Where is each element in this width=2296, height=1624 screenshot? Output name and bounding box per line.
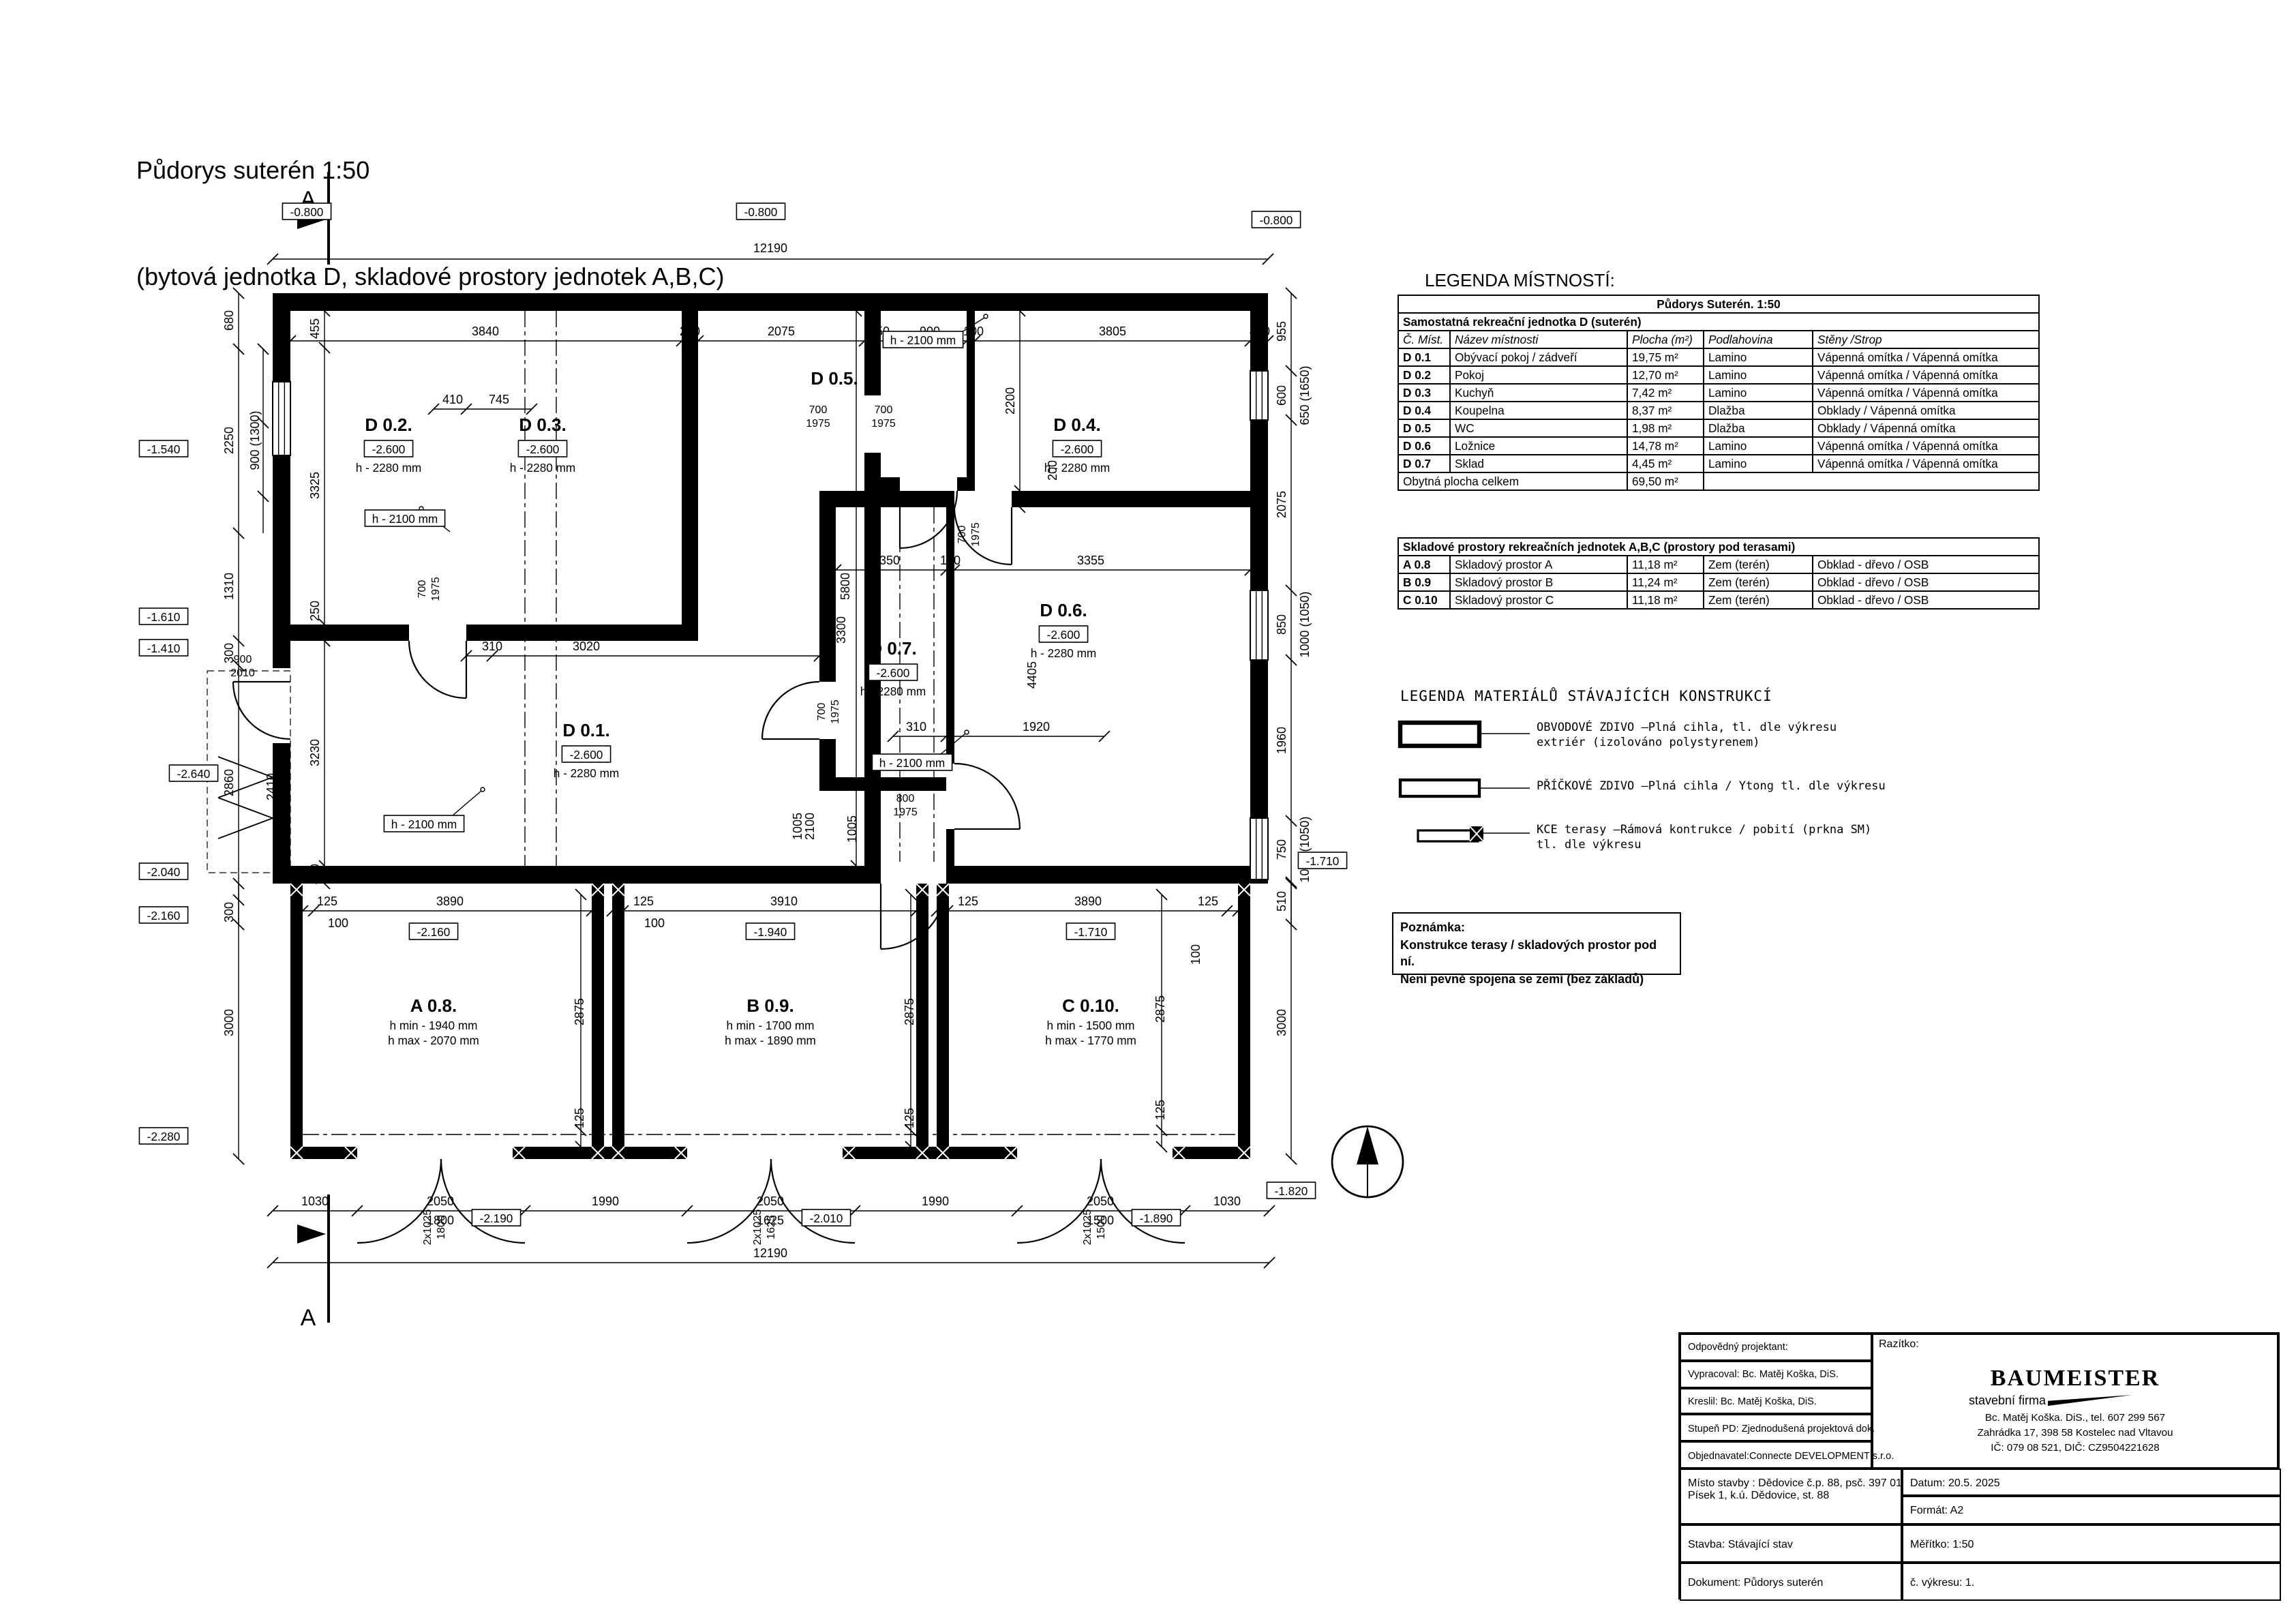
table-cell: Obytná plocha celkem (1398, 472, 1627, 490)
dim-text: 700 (816, 703, 828, 721)
room-height-line: h min - 1940 mm (390, 1019, 478, 1032)
room-name: D 0.5. (811, 368, 858, 389)
table-row: Samostatná rekreační jednotka D (suterén… (1398, 313, 2039, 331)
material-item-2: PŘÍČKOVÉ ZDIVO –Plná cihla / Ytong tl. d… (1537, 780, 1886, 795)
dimension-lines (233, 254, 1297, 1268)
dim-text: 2x1025 (1082, 1209, 1093, 1246)
elevation-label: h - 2100 mm (879, 756, 945, 770)
room-height-line: h min - 1700 mm (727, 1019, 815, 1032)
room-elevation: -2.600 (1047, 628, 1081, 642)
elevation-label: -1.890 (1140, 1212, 1173, 1225)
table-row: A 0.8Skladový prostor A11,18 m²Zem (teré… (1398, 556, 2039, 573)
table-cell: Obklad - dřevo / OSB (1813, 573, 2039, 591)
elevation-label: -1.410 (147, 642, 181, 655)
dim-text: 1975 (830, 700, 841, 724)
dim-text: 700 (875, 404, 893, 416)
table-cell: Skladové prostory rekreačních jednotek A… (1398, 538, 2039, 556)
table-cell: Lamino (1704, 437, 1813, 455)
table-cell: Vápenná omítka / Vápenná omítka (1813, 455, 2039, 472)
table-cell: Vápenná omítka / Vápenná omítka (1813, 437, 2039, 455)
dim-text: 1975 (430, 577, 442, 601)
window (1250, 818, 1268, 879)
table-cell: A 0.8 (1398, 556, 1450, 573)
elevation-label: -2.160 (147, 909, 181, 922)
table-cell: D 0.3 (1398, 384, 1450, 402)
table-cell: Obklady / Vápenná omítka (1813, 402, 2039, 419)
room-name: D 0.4. (1053, 415, 1100, 435)
dim-text: 1005 (845, 815, 859, 843)
dim-text: 2050 (427, 1194, 454, 1208)
dim-text: 2410 (265, 773, 278, 800)
dim-text: 250 (308, 601, 322, 621)
table-cell: Půdorys Suterén. 1:50 (1398, 295, 2039, 313)
material-item-3-line2: tl. dle výkresu (1537, 839, 1871, 854)
table-cell: 14,78 m² (1627, 437, 1704, 455)
title-block: Odpovědný projektant:Vypracoval: Bc. Mat… (1678, 1332, 2280, 1599)
dim-text: 3355 (1077, 554, 1104, 567)
titleblock-row: Odpovědný projektant: (1680, 1334, 1872, 1361)
dim-text: 125 (633, 894, 654, 908)
table-cell: Obývací pokoj / zádveří (1450, 348, 1627, 366)
room-elevation: -2.600 (372, 442, 406, 456)
table-row: Obytná plocha celkem69,50 m² (1398, 472, 2039, 490)
legend-table-storage: Skladové prostory rekreačních jednotek A… (1398, 537, 2040, 610)
titleblock-row: Kreslil: Bc. Matěj Koška, DiS. (1680, 1387, 1872, 1415)
elevation-label: -1.540 (147, 442, 181, 456)
table-cell: Obklad - dřevo / OSB (1813, 591, 2039, 609)
elevation-label: -2.160 (417, 925, 451, 939)
room-name: B 0.9. (746, 995, 794, 1016)
table-cell: Sklad (1450, 455, 1627, 472)
dim-text: 1990 (922, 1194, 949, 1208)
table-cell: D 0.2 (1398, 366, 1450, 384)
dim-text: 600 (1275, 385, 1288, 406)
room-height: h - 2280 mm (510, 461, 575, 475)
dim-text: 410 (442, 393, 463, 406)
room-name: D 0.7. (869, 638, 916, 659)
table-cell: D 0.1 (1398, 348, 1450, 366)
dim-text: 900 (1300) (248, 410, 262, 470)
table-cell: Ložnice (1450, 437, 1627, 455)
room-name: D 0.1. (562, 720, 609, 740)
dim-text: 12190 (753, 1246, 787, 1260)
elevation-label: -2.190 (480, 1212, 513, 1225)
table-cell: WC (1450, 419, 1627, 437)
room-elevation: -2.600 (877, 666, 910, 680)
table-cell: Zem (terén) (1704, 573, 1813, 591)
room-height: h - 2280 mm (1031, 646, 1096, 660)
dim-text: 1310 (222, 573, 236, 600)
windows (273, 371, 1268, 879)
dim-text: 2875 (903, 998, 916, 1025)
table-row: D 0.1Obývací pokoj / zádveří19,75 m²Lami… (1398, 348, 2039, 366)
table-row: D 0.5WC1,98 m²DlažbaObklady / Vápenná om… (1398, 419, 2039, 437)
dim-text: 1005 (791, 813, 804, 840)
dim-text: 1350 (873, 554, 900, 567)
dim-text: 1800 (436, 1215, 447, 1239)
table-cell: Koupelna (1450, 402, 1627, 419)
table-row: D 0.3Kuchyň7,42 m²LaminoVápenná omítka /… (1398, 384, 2039, 402)
table-cell: Vápenná omítka / Vápenná omítka (1813, 384, 2039, 402)
page-title-line1: Půdorys suterén 1:50 (136, 153, 724, 188)
table-cell: 11,24 m² (1627, 573, 1704, 591)
north-arrow (1332, 1126, 1403, 1197)
table-cell: 11,18 m² (1627, 591, 1704, 609)
table-cell: Pokoj (1450, 366, 1627, 384)
dim-text: 650 (1650) (1298, 365, 1312, 425)
dim-text: 125 (317, 894, 337, 908)
window (1250, 590, 1268, 660)
elevation-label: -2.640 (177, 767, 211, 781)
table-cell: Název místnosti (1450, 331, 1627, 348)
room-height-line: h min - 1500 mm (1047, 1019, 1135, 1032)
dim-text: 310 (482, 640, 502, 653)
dim-text: 2250 (222, 427, 236, 454)
elevation-label: h - 2100 mm (890, 333, 956, 347)
table-cell: Lamino (1704, 384, 1813, 402)
vykres-cell: č. výkresu: 1. (1902, 1563, 2281, 1601)
elevation-label: h - 2100 mm (372, 512, 438, 526)
room-height: h - 2280 mm (860, 685, 926, 698)
misto-line1: Místo stavby : Dědovice č.p. 88, psč. 39… (1688, 1477, 1901, 1489)
table-cell: Samostatná rekreační jednotka D (suterén… (1398, 313, 2039, 331)
table-cell: Skladový prostor B (1450, 573, 1627, 591)
room-elevation: -2.600 (526, 442, 560, 456)
note-line2: Konstrukce terasy / skladových prostor p… (1400, 936, 1673, 970)
titleblock-row: Stupeň PD: Zjednodušená projektová dok. (1680, 1415, 1872, 1442)
table-cell: B 0.9 (1398, 573, 1450, 591)
dim-text: 1975 (970, 522, 982, 547)
dim-text: 2050 (757, 1194, 784, 1208)
dim-text: 2x1025 (752, 1209, 764, 1246)
table-row: B 0.9Skladový prostor B11,24 m²Zem (teré… (1398, 573, 2039, 591)
dim-text: 1975 (893, 807, 918, 818)
dim-text: 750 (1275, 839, 1288, 860)
table-cell: 19,75 m² (1627, 348, 1704, 366)
table-row: D 0.6Ložnice14,78 m²LaminoVápenná omítka… (1398, 437, 2039, 455)
dim-text: 3000 (222, 1009, 236, 1036)
room-height-line: h max - 1770 mm (1045, 1034, 1136, 1047)
room-name: A 0.8. (410, 995, 457, 1016)
dokument-cell: Dokument: Půdorys suterén (1680, 1563, 1902, 1601)
dim-text: 745 (489, 393, 509, 406)
datum-cell: Datum: 20.5. 2025 (1902, 1469, 2281, 1496)
dim-text: 800 (896, 793, 915, 805)
dim-text: 450 (1250, 325, 1270, 338)
dim-text: 3890 (436, 894, 464, 908)
stavba-cell: Stavba: Stávající stav (1680, 1524, 1902, 1563)
titleblock-row: Vypracoval: Bc. Matěj Koška, DiS. (1680, 1361, 1872, 1388)
table-cell: Lamino (1704, 455, 1813, 472)
meritko-cell: Měřítko: 1:50 (1902, 1524, 2281, 1563)
dim-text: 1030 (301, 1194, 329, 1208)
table-cell: Dlažba (1704, 402, 1813, 419)
table-row: D 0.4Koupelna8,37 m²DlažbaObklady / Vápe… (1398, 402, 2039, 419)
dim-text: 310 (906, 720, 926, 734)
dim-text: 1000 (1050) (1298, 591, 1312, 657)
legend-heading: LEGENDA MÍSTNOSTÍ: (1425, 270, 1615, 290)
table-cell: Plocha (m²) (1627, 331, 1704, 348)
dim-text: 100 (1189, 944, 1203, 965)
page-title-line2: (bytová jednotka D, skladové prostory je… (136, 259, 724, 295)
dim-text: 2100 (803, 813, 817, 840)
company-logo-triangle (2048, 1395, 2132, 1406)
dim-text: 125 (903, 1108, 916, 1128)
dim-text: 2050 (1087, 1194, 1114, 1208)
table-cell: D 0.5 (1398, 419, 1450, 437)
materials-legend: LEGENDA MATERIÁLŮ STÁVAJÍCÍCH KONSTRUKCÍ (1400, 689, 1973, 719)
room-height-line: h max - 2070 mm (388, 1034, 479, 1047)
dim-text: 3910 (770, 894, 798, 908)
dim-text: 12190 (753, 241, 787, 255)
dim-text: 5800 (839, 573, 852, 600)
dim-text: 1500 (1096, 1215, 1107, 1239)
dim-text: 300 (222, 902, 236, 922)
window (1250, 371, 1268, 420)
table-cell: Obklad - dřevo / OSB (1813, 556, 2039, 573)
table-cell: 69,50 m² (1627, 472, 1704, 490)
table-cell: Skladový prostor A (1450, 556, 1627, 573)
dim-text: 955 (1275, 321, 1288, 342)
company-sub: stavební firma (1969, 1394, 2046, 1407)
drawing-sheet: 1219038402002075350900100380545041074568… (0, 0, 2296, 1624)
dim-text: 2060 (278, 773, 292, 800)
table-cell: Skladový prostor C (1450, 591, 1627, 609)
dim-text: 2200 (1003, 387, 1017, 415)
material-item-1-line1: OBVODOVÉ ZDIVO –Plná cihla, tl. dle výkr… (1537, 721, 1837, 736)
table-row: Skladové prostory rekreačních jednotek A… (1398, 538, 2039, 556)
legend-table-rooms: Půdorys Suterén. 1:50Samostatná rekreačn… (1398, 295, 2040, 491)
dim-text: 125 (1198, 894, 1218, 908)
dim-text: 1920 (1023, 720, 1050, 734)
dim-text: 3300 (834, 616, 848, 644)
note-box: Poznámka: Konstrukce terasy / skladových… (1392, 912, 1681, 975)
table-cell: Stěny /Strop (1813, 331, 2039, 348)
table-cell: Zem (terén) (1704, 556, 1813, 573)
titleblock-row: Objednavatel:Connecte DEVELOPMENT s.r.o. (1680, 1441, 1872, 1469)
elevation-label: -2.010 (810, 1212, 843, 1225)
table-cell: Vápenná omítka / Vápenná omítka (1813, 348, 2039, 366)
stamp-line3: IČ: 079 08 521, DIČ: CZ9504221628 (1873, 1441, 2277, 1456)
table-cell: Obklady / Vápenná omítka (1813, 419, 2039, 437)
dim-text: 700 (956, 526, 968, 544)
table-cell: Zem (terén) (1704, 591, 1813, 609)
elevation-label: -0.800 (1260, 213, 1293, 227)
table-cell: D 0.7 (1398, 455, 1450, 472)
material-item-1: OBVODOVÉ ZDIVO –Plná cihla, tl. dle výkr… (1537, 721, 1837, 751)
stamp-line2: Zahrádka 17, 398 58 Kostelec nad Vltavou (1873, 1426, 2277, 1441)
table-cell: Vápenná omítka / Vápenná omítka (1813, 366, 2039, 384)
dim-text: 3890 (1074, 894, 1102, 908)
material-item-3-line1: KCE terasy –Rámová kontrukce / pobití (p… (1537, 824, 1871, 839)
table-cell (1704, 472, 2039, 490)
table-row: Č. Míst.Název místnostiPlocha (m²)Podlah… (1398, 331, 2039, 348)
dim-text: 100 (644, 916, 665, 930)
elevation-label: -2.280 (147, 1130, 181, 1143)
dim-text: 3805 (1099, 325, 1126, 338)
dim-text: 100 (963, 325, 984, 338)
table-row: D 0.7Sklad4,45 m²LaminoVápenná omítka / … (1398, 455, 2039, 472)
misto-stavby-cell: Místo stavby : Dědovice č.p. 88, psč. 39… (1680, 1469, 1902, 1524)
dim-text: 1000 (1050) (1298, 816, 1312, 882)
elevation-label: -1.710 (1306, 854, 1340, 868)
room-name: D 0.6. (1040, 600, 1087, 620)
table-cell: Lamino (1704, 366, 1813, 384)
room-labels: D 0.2.-2.600h - 2280 mmD 0.3.-2.600h - 2… (356, 368, 1136, 1047)
dim-text: 440 (308, 864, 322, 884)
table-cell: 8,37 m² (1627, 402, 1704, 419)
dim-text: 125 (1153, 1100, 1167, 1120)
room-elevation: -2.600 (1061, 442, 1094, 456)
material-item-2-line1: PŘÍČKOVÉ ZDIVO –Plná cihla / Ytong tl. d… (1537, 780, 1886, 795)
table-cell: 4,45 m² (1627, 455, 1704, 472)
razitko-label: Razítko: (1879, 1338, 1919, 1350)
dim-text: 1990 (592, 1194, 619, 1208)
materials-heading: LEGENDA MATERIÁLŮ STÁVAJÍCÍCH KONSTRUKCÍ (1400, 689, 1973, 705)
note-line1: Poznámka: (1400, 919, 1673, 936)
table-cell: Kuchyň (1450, 384, 1627, 402)
elevation-label: -0.800 (744, 205, 778, 219)
note-line3: Není pevně spojena se zemí (bez základů) (1400, 970, 1673, 987)
dim-text: 2860 (222, 769, 236, 796)
dim-text: 510 (1275, 891, 1288, 912)
room-name: D 0.2. (365, 415, 412, 435)
elevation-label: -2.040 (147, 865, 181, 879)
dim-text: 2075 (1275, 491, 1288, 518)
dim-text: 100 (940, 554, 961, 567)
table-cell: Č. Míst. (1398, 331, 1450, 348)
elevation-label: -1.940 (754, 925, 787, 939)
dim-text: 125 (958, 894, 978, 908)
dim-text: 2010 (230, 667, 255, 679)
room-elevation: -2.600 (570, 748, 603, 762)
table-cell: 1,98 m² (1627, 419, 1704, 437)
room-height: h - 2280 mm (356, 461, 421, 475)
dim-text: 3000 (1275, 1009, 1288, 1036)
dim-text: 1975 (806, 418, 830, 430)
material-symbols (1400, 723, 1530, 841)
dim-text: 1625 (766, 1215, 777, 1239)
dim-text: 1975 (871, 418, 896, 430)
material-item-3: KCE terasy –Rámová kontrukce / pobití (p… (1537, 824, 1871, 854)
dim-text: 125 (573, 1108, 586, 1128)
dim-text: 2x1025 (422, 1209, 434, 1246)
section-marker-bottom (297, 1194, 329, 1323)
leader-lines (419, 314, 988, 815)
table-cell: 7,42 m² (1627, 384, 1704, 402)
misto-line2: Písek 1, k.ú. Dědovice, st. 88 (1688, 1489, 1901, 1501)
dim-text: 1030 (1213, 1194, 1241, 1208)
elevation-label: -1.610 (147, 610, 181, 624)
dim-text: A (301, 1305, 316, 1331)
table-cell: Podlahovina (1704, 331, 1813, 348)
company-name: BAUMEISTER (1873, 1365, 2277, 1392)
dim-text: 3020 (573, 640, 600, 653)
room-name: D 0.3. (519, 415, 566, 435)
room-height: h - 2280 mm (554, 766, 619, 780)
table-cell: 12,70 m² (1627, 366, 1704, 384)
window (273, 382, 290, 455)
dim-text: 3230 (308, 739, 322, 766)
dim-text: 1960 (1275, 727, 1288, 754)
room-height-line: h max - 1890 mm (725, 1034, 816, 1047)
dim-text: 700 (809, 404, 828, 416)
table-cell: C 0.10 (1398, 591, 1450, 609)
dim-text: 2875 (1153, 995, 1167, 1023)
dim-text: 900 (234, 654, 252, 665)
table-row: Půdorys Suterén. 1:50 (1398, 295, 2039, 313)
table-cell: D 0.6 (1398, 437, 1450, 455)
table-cell: 11,18 m² (1627, 556, 1704, 573)
elevation-label: -1.820 (1275, 1184, 1308, 1198)
dim-text: 100 (328, 916, 348, 930)
room-name: C 0.10. (1062, 995, 1119, 1016)
dim-text: 2875 (573, 998, 586, 1025)
dim-text: 2075 (768, 325, 795, 338)
format-cell: Formát: A2 (1902, 1496, 2281, 1524)
dim-text: 3325 (308, 472, 322, 499)
stamp-line1: Bc. Matěj Koška. DiS., tel. 607 299 567 (1873, 1411, 2277, 1426)
room-height: h - 2280 mm (1044, 461, 1110, 475)
table-cell: D 0.4 (1398, 402, 1450, 419)
dim-text: 700 (417, 580, 428, 599)
elevation-label: h - 2100 mm (391, 817, 457, 831)
material-item-1-line2: extriér (izolováno polystyrenem) (1537, 736, 1837, 751)
page-title: Půdorys suterén 1:50 (bytová jednotka D,… (136, 82, 724, 365)
table-cell: Lamino (1704, 348, 1813, 366)
elevation-label: -1.710 (1074, 925, 1108, 939)
dim-text: 4405 (1025, 661, 1039, 689)
table-row: D 0.2Pokoj12,70 m²LaminoVápenná omítka /… (1398, 366, 2039, 384)
stamp-area: Razítko: BAUMEISTER stavební firma Bc. M… (1872, 1334, 2278, 1469)
table-cell: Dlažba (1704, 419, 1813, 437)
dim-text: 850 (1275, 614, 1288, 635)
table-row: C 0.10Skladový prostor C11,18 m²Zem (ter… (1398, 591, 2039, 609)
